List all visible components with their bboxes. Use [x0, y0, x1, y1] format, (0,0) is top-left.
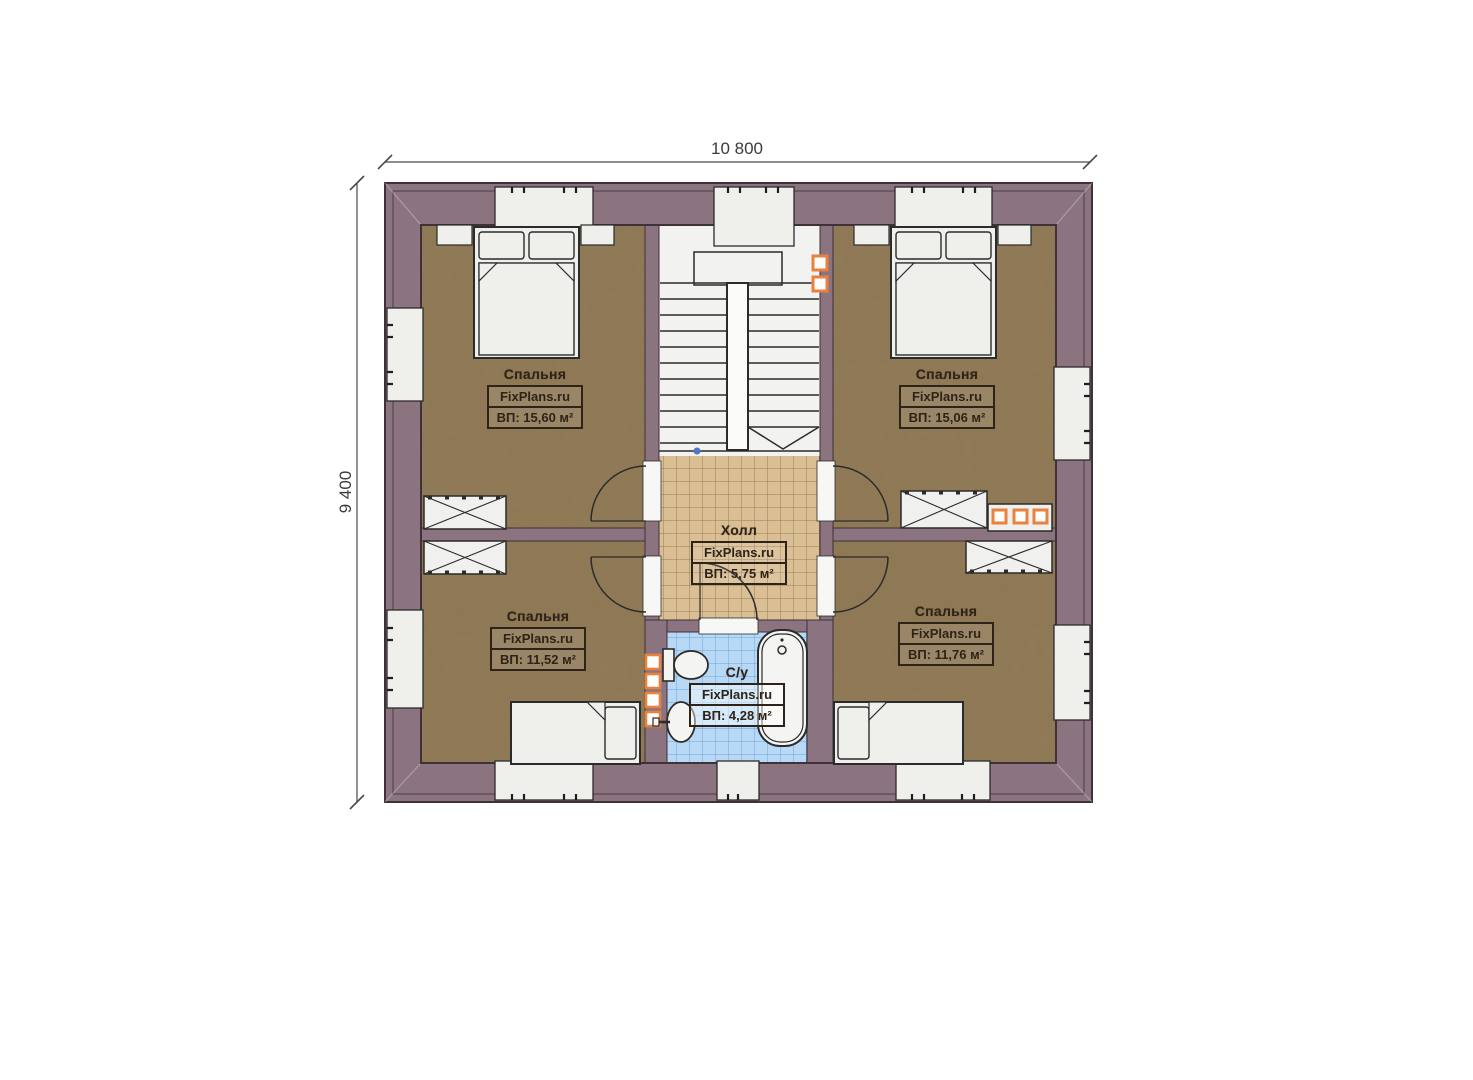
- room-name: Спальня: [898, 603, 994, 619]
- single-bed-bottom-left: [511, 702, 640, 764]
- mattress: [479, 263, 574, 355]
- window-left-lower: [387, 610, 423, 708]
- room-name: Холл: [691, 522, 787, 538]
- stair-start-dot: [694, 448, 701, 455]
- door-opening-bedroom-bottom-right: [817, 556, 835, 616]
- room-name: Спальня: [487, 366, 583, 382]
- window-right-lower: [1054, 625, 1090, 720]
- window-top-right: [895, 187, 992, 227]
- room-watermark: FixPlans.ru: [691, 541, 787, 564]
- stair-stringer: [727, 283, 748, 450]
- room-area: ВП: 11,52 м²: [490, 648, 586, 671]
- room-label-bedroom-top-left: Спальня FixPlans.ru ВП: 15,60 м²: [487, 366, 583, 429]
- chimney-right-rooms: [988, 504, 1052, 531]
- room-watermark: FixPlans.ru: [898, 622, 994, 645]
- pillow: [896, 232, 941, 259]
- floor-plan-page: 10 800 9 400 Спальня FixPlans.ru ВП: 15,…: [0, 0, 1473, 1080]
- dimension-height-label: 9 400: [336, 471, 356, 514]
- room-name: Спальня: [490, 608, 586, 624]
- wardrobe-left-upper: [424, 496, 506, 529]
- wardrobe-left-lower: [424, 541, 506, 574]
- room-name: С/у: [689, 664, 785, 680]
- nightstand: [581, 225, 614, 245]
- single-bed-bottom-right: [834, 702, 963, 764]
- door-opening-bedroom-bottom-left: [643, 556, 661, 616]
- nightstand: [998, 225, 1031, 245]
- wardrobe-right-lower: [966, 541, 1052, 573]
- room-area: ВП: 5,75 м²: [691, 562, 787, 585]
- room-label-bedroom-bottom-right: Спальня FixPlans.ru ВП: 11,76 м²: [898, 603, 994, 666]
- pillow: [479, 232, 524, 259]
- window-bottom-right: [896, 761, 990, 800]
- room-watermark: FixPlans.ru: [689, 683, 785, 706]
- door-opening-bedroom-top-left: [643, 461, 661, 521]
- pillow: [838, 707, 869, 759]
- window-right-upper: [1054, 367, 1090, 460]
- room-area: ВП: 15,06 м²: [899, 406, 995, 429]
- room-name: Спальня: [899, 366, 995, 382]
- room-label-bedroom-bottom-left: Спальня FixPlans.ru ВП: 11,52 м²: [490, 608, 586, 671]
- door-opening-bedroom-top-right: [817, 461, 835, 521]
- nightstand: [854, 225, 889, 245]
- door-opening-bathroom: [699, 618, 758, 634]
- window-left-upper: [387, 308, 423, 401]
- room-watermark: FixPlans.ru: [490, 627, 586, 650]
- room-area: ВП: 11,76 м²: [898, 643, 994, 666]
- window-top-middle: [714, 187, 794, 246]
- window-bottom-left: [495, 761, 593, 800]
- room-label-hall: Холл FixPlans.ru ВП: 5,75 м²: [691, 522, 787, 585]
- dimension-width-label: 10 800: [711, 139, 763, 159]
- pillow: [529, 232, 574, 259]
- pillow: [605, 707, 636, 759]
- pillow: [946, 232, 991, 259]
- window-top-left: [495, 187, 593, 227]
- room-label-bedroom-top-right: Спальня FixPlans.ru ВП: 15,06 м²: [899, 366, 995, 429]
- room-watermark: FixPlans.ru: [487, 385, 583, 408]
- room-label-bathroom: С/у FixPlans.ru ВП: 4,28 м²: [689, 664, 785, 727]
- room-watermark: FixPlans.ru: [899, 385, 995, 408]
- mattress: [896, 263, 991, 355]
- room-area: ВП: 15,60 м²: [487, 406, 583, 429]
- nightstand: [437, 225, 472, 245]
- room-area: ВП: 4,28 м²: [689, 704, 785, 727]
- wardrobe-right-upper: [901, 491, 987, 528]
